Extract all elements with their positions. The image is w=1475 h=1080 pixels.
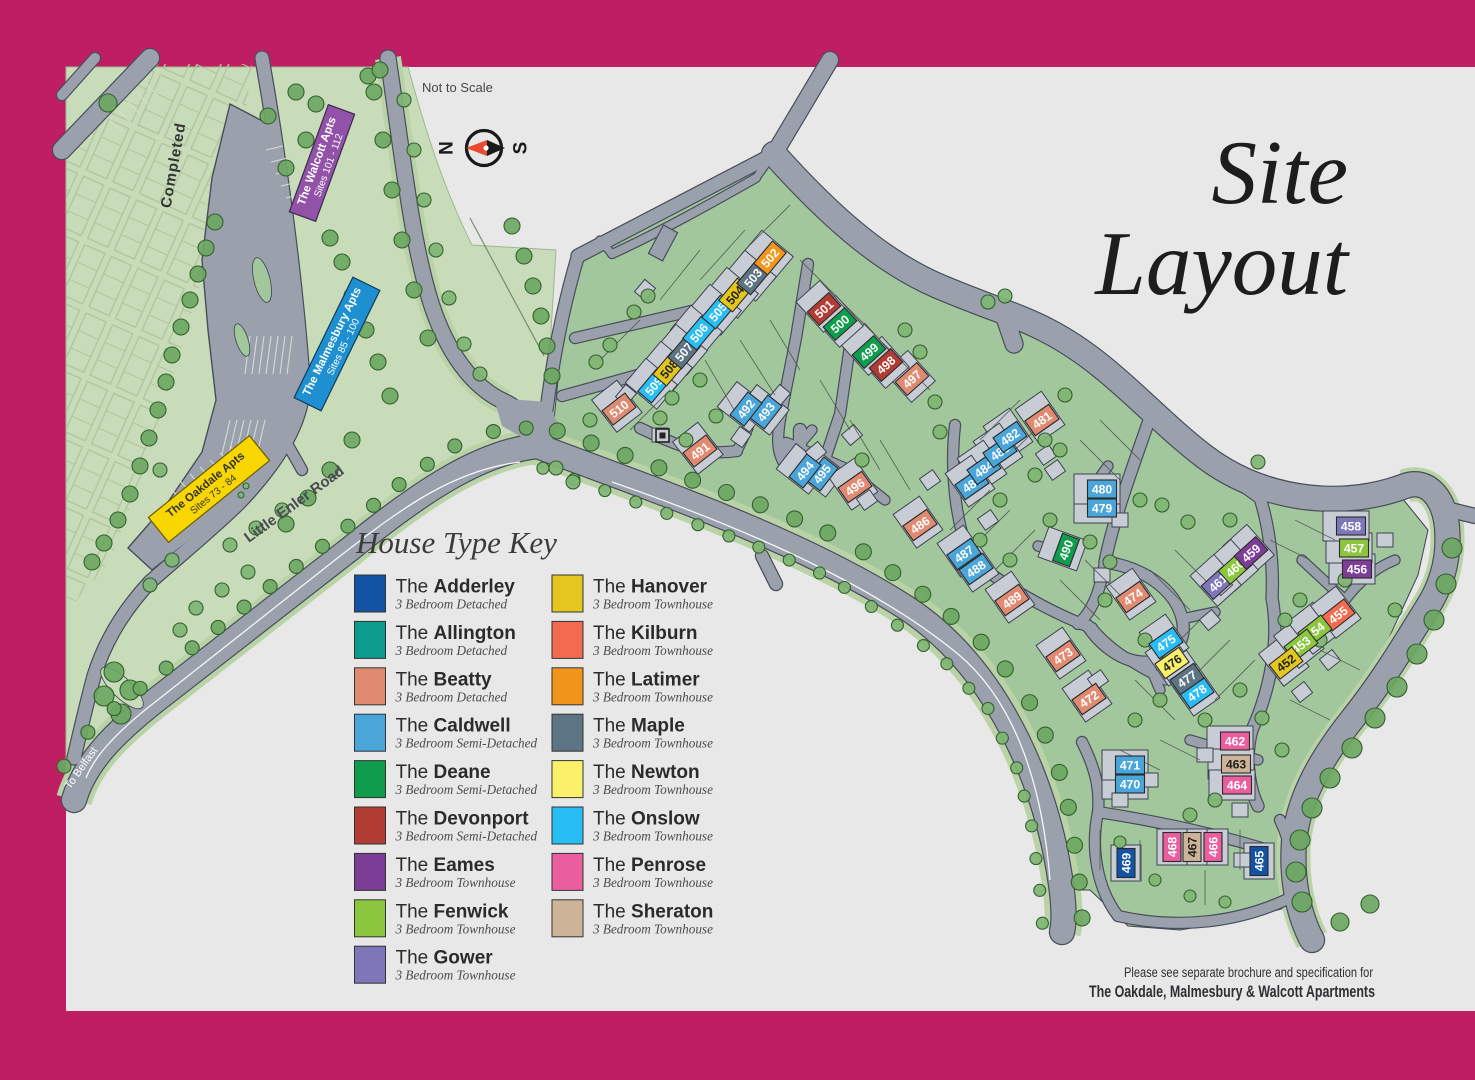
svg-text:471: 471 [1120,758,1141,772]
svg-text:S: S [511,142,532,155]
svg-text:The Latimer: The Latimer [593,669,700,690]
svg-text:The Sheraton: The Sheraton [593,901,713,922]
svg-text:469: 469 [1119,853,1133,874]
svg-text:3 Bedroom Detached: 3 Bedroom Detached [395,689,508,704]
svg-text:The Fenwick: The Fenwick [396,901,509,922]
svg-text:3 Bedroom Townhouse: 3 Bedroom Townhouse [592,921,713,936]
svg-text:The Newton: The Newton [593,762,700,783]
svg-text:The Deane: The Deane [396,762,491,783]
svg-text:3 Bedroom Townhouse: 3 Bedroom Townhouse [395,875,516,890]
svg-text:Layout: Layout [1093,213,1351,314]
svg-text:The Caldwell: The Caldwell [396,716,511,737]
svg-text:3 Bedroom Semi-Detached: 3 Bedroom Semi-Detached [395,829,538,844]
svg-text:Site: Site [1212,122,1348,223]
svg-text:462: 462 [1225,734,1246,748]
svg-text:The Penrose: The Penrose [593,855,706,876]
svg-text:The Onslow: The Onslow [593,809,700,830]
svg-text:The Kilburn: The Kilburn [593,623,698,644]
svg-text:465: 465 [1252,851,1266,872]
svg-text:The Oakdale, Malmesbury & Walc: The Oakdale, Malmesbury & Walcott Apartm… [1089,982,1375,1001]
svg-text:3 Bedroom Townhouse: 3 Bedroom Townhouse [592,875,713,890]
svg-text:3 Bedroom Townhouse: 3 Bedroom Townhouse [592,689,713,704]
svg-text:The Gower: The Gower [396,948,494,969]
svg-text:Please see separate brochure a: Please see separate brochure and specifi… [1124,965,1373,980]
svg-text:The Hanover: The Hanover [593,577,708,598]
svg-text:3 Bedroom Townhouse: 3 Bedroom Townhouse [592,782,713,797]
svg-text:467: 467 [1185,837,1199,858]
svg-text:468: 468 [1165,837,1179,858]
svg-text:3 Bedroom Townhouse: 3 Bedroom Townhouse [395,921,516,936]
svg-text:463: 463 [1226,757,1247,771]
svg-text:House Type Key: House Type Key [355,525,557,560]
svg-text:3 Bedroom Semi-Detached: 3 Bedroom Semi-Detached [395,782,538,797]
svg-text:The Adderley: The Adderley [396,577,516,598]
svg-text:3 Bedroom Townhouse: 3 Bedroom Townhouse [592,736,713,751]
svg-text:458: 458 [1341,519,1362,533]
svg-text:3 Bedroom Townhouse: 3 Bedroom Townhouse [395,968,516,983]
svg-text:466: 466 [1206,837,1220,858]
svg-text:3 Bedroom Townhouse: 3 Bedroom Townhouse [592,643,713,658]
svg-text:3 Bedroom Townhouse: 3 Bedroom Townhouse [592,829,713,844]
svg-text:464: 464 [1227,778,1248,792]
svg-text:The Eames: The Eames [396,855,495,876]
svg-text:The Devonport: The Devonport [396,809,530,830]
svg-text:479: 479 [1092,501,1113,515]
svg-text:457: 457 [1344,541,1365,555]
svg-text:The Beatty: The Beatty [396,669,493,690]
svg-text:3 Bedroom Detached: 3 Bedroom Detached [395,597,508,612]
svg-text:The Maple: The Maple [593,716,685,737]
svg-text:3 Bedroom Semi-Detached: 3 Bedroom Semi-Detached [395,736,538,751]
svg-text:456: 456 [1347,562,1368,576]
svg-text:The Allington: The Allington [396,623,516,644]
svg-text:N: N [437,141,458,155]
svg-text:480: 480 [1092,482,1113,496]
svg-text:3 Bedroom Detached: 3 Bedroom Detached [395,643,508,658]
svg-text:3 Bedroom Townhouse: 3 Bedroom Townhouse [592,597,713,612]
svg-text:Not to Scale: Not to Scale [422,80,493,95]
svg-text:470: 470 [1120,777,1141,791]
